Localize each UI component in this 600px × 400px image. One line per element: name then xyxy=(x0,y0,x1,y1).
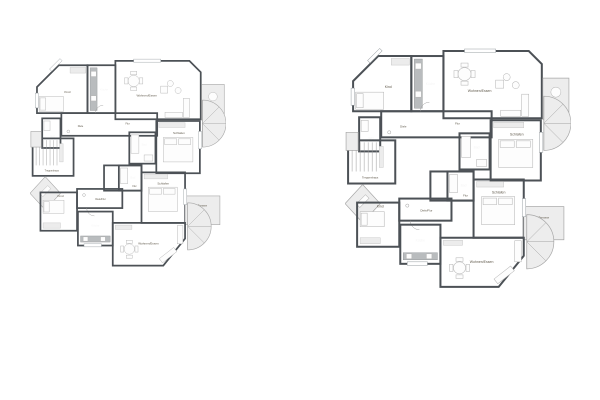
floorplans-canvas: Kind Küche xyxy=(0,0,600,400)
floor-plan-left xyxy=(30,58,226,285)
floor-plan-right xyxy=(345,48,571,309)
